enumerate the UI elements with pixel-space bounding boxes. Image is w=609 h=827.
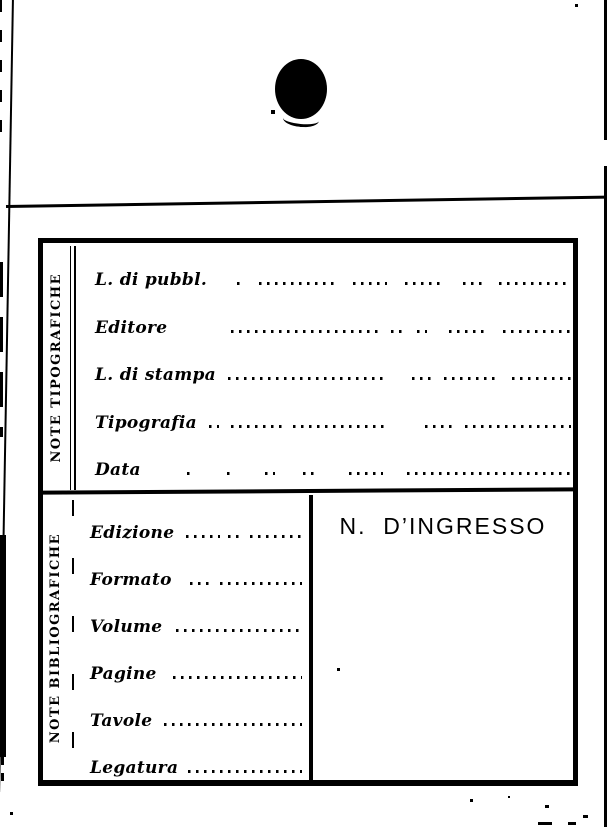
ink-speck — [545, 805, 549, 808]
dotted-blank — [349, 472, 383, 475]
field-row-l-di-pubbl: L. di pubbl. — [95, 268, 571, 290]
dotted-blank — [173, 676, 302, 679]
field-label: L. di pubbl. — [95, 270, 207, 290]
left-page-edge-artifact — [1, 757, 4, 785]
dotted-blank — [231, 330, 379, 333]
dotted-blank — [188, 770, 302, 773]
dotted-blank — [407, 472, 571, 475]
field-label: Data — [95, 460, 141, 480]
dotted-blank — [412, 377, 432, 380]
dotted-blank — [444, 377, 498, 380]
dotted-blank — [190, 582, 212, 585]
label-column-rule — [74, 246, 76, 490]
dotted-blank — [293, 425, 385, 428]
label-column-rule — [70, 246, 71, 490]
dotted-blank — [209, 425, 219, 428]
dotted-blank — [499, 282, 571, 285]
dotted-blank — [237, 282, 245, 285]
dotted-blank — [303, 472, 319, 475]
ink-speck — [337, 668, 340, 671]
dotted-blank — [228, 535, 242, 538]
dotted-blank — [187, 472, 193, 475]
field-row-tipografia: Tipografia — [95, 411, 571, 433]
dotted-blank — [417, 330, 427, 333]
field-label: Editore — [95, 318, 167, 338]
card-top-edge-line — [6, 196, 606, 208]
dotted-blank — [250, 535, 302, 538]
field-label: Pagine — [90, 664, 157, 684]
dotted-blank — [265, 472, 275, 475]
dotted-blank — [465, 425, 571, 428]
ink-speck — [568, 822, 576, 825]
dotted-blank — [449, 330, 485, 333]
ink-speck — [583, 815, 588, 818]
ink-speck — [470, 799, 473, 802]
side-label-text: NOTE BIBLIOGRAFICHE — [48, 533, 63, 743]
left-page-edge-artifact — [0, 262, 3, 437]
field-row-l-di-stampa: L. di stampa — [95, 363, 571, 385]
dotted-blank — [405, 282, 441, 285]
dotted-blank — [220, 582, 302, 585]
dotted-blank — [259, 282, 337, 285]
dotted-blank — [353, 282, 387, 285]
field-label: Legatura — [90, 758, 178, 778]
field-row-editore: Editore — [95, 316, 571, 338]
dotted-blank — [231, 425, 283, 428]
field-label: Tipografia — [95, 413, 197, 433]
right-page-edge-artifact — [604, 166, 607, 827]
catalog-card-scan: NOTE TIPOGRAFICHE NOTE BIBLIOGRAFICHE L.… — [0, 0, 609, 827]
field-label: Formato — [90, 570, 172, 590]
label-column-rule-dashed — [72, 500, 74, 780]
dotted-blank — [425, 425, 455, 428]
field-row-legatura: Legatura — [90, 756, 302, 778]
field-label: Volume — [90, 617, 162, 637]
dotted-blank — [164, 723, 302, 726]
dotted-blank — [503, 330, 571, 333]
field-row-tavole: Tavole — [90, 709, 302, 731]
side-label-text: NOTE TIPOGRAFICHE — [49, 273, 64, 463]
field-label: L. di stampa — [95, 365, 216, 385]
ink-speck — [508, 796, 510, 798]
dotted-blank — [512, 377, 571, 380]
dotted-blank — [463, 282, 485, 285]
ingresso-header: N. D’INGRESSO — [312, 513, 574, 540]
left-page-edge-artifact — [0, 0, 2, 135]
ink-speck — [538, 822, 552, 825]
field-label: Edizione — [90, 523, 174, 543]
ink-speck — [575, 4, 578, 7]
punch-hole-icon — [275, 59, 327, 119]
field-row-volume: Volume — [90, 615, 302, 637]
field-row-edizione: Edizione — [90, 521, 302, 543]
field-label: Tavole — [90, 711, 152, 731]
dotted-blank — [228, 377, 386, 380]
dotted-blank — [227, 472, 235, 475]
field-row-pagine: Pagine — [90, 662, 302, 684]
dotted-blank — [176, 629, 302, 632]
dotted-blank — [186, 535, 220, 538]
dotted-blank — [391, 330, 407, 333]
field-row-data: Data — [95, 458, 571, 480]
note-tipografiche-side-label: NOTE TIPOGRAFICHE — [43, 246, 70, 489]
ink-speck — [10, 812, 13, 815]
note-bibliografiche-side-label: NOTE BIBLIOGRAFICHE — [41, 497, 69, 780]
right-page-edge-artifact — [604, 0, 607, 140]
ink-speck — [271, 110, 275, 114]
field-row-formato: Formato — [90, 568, 302, 590]
